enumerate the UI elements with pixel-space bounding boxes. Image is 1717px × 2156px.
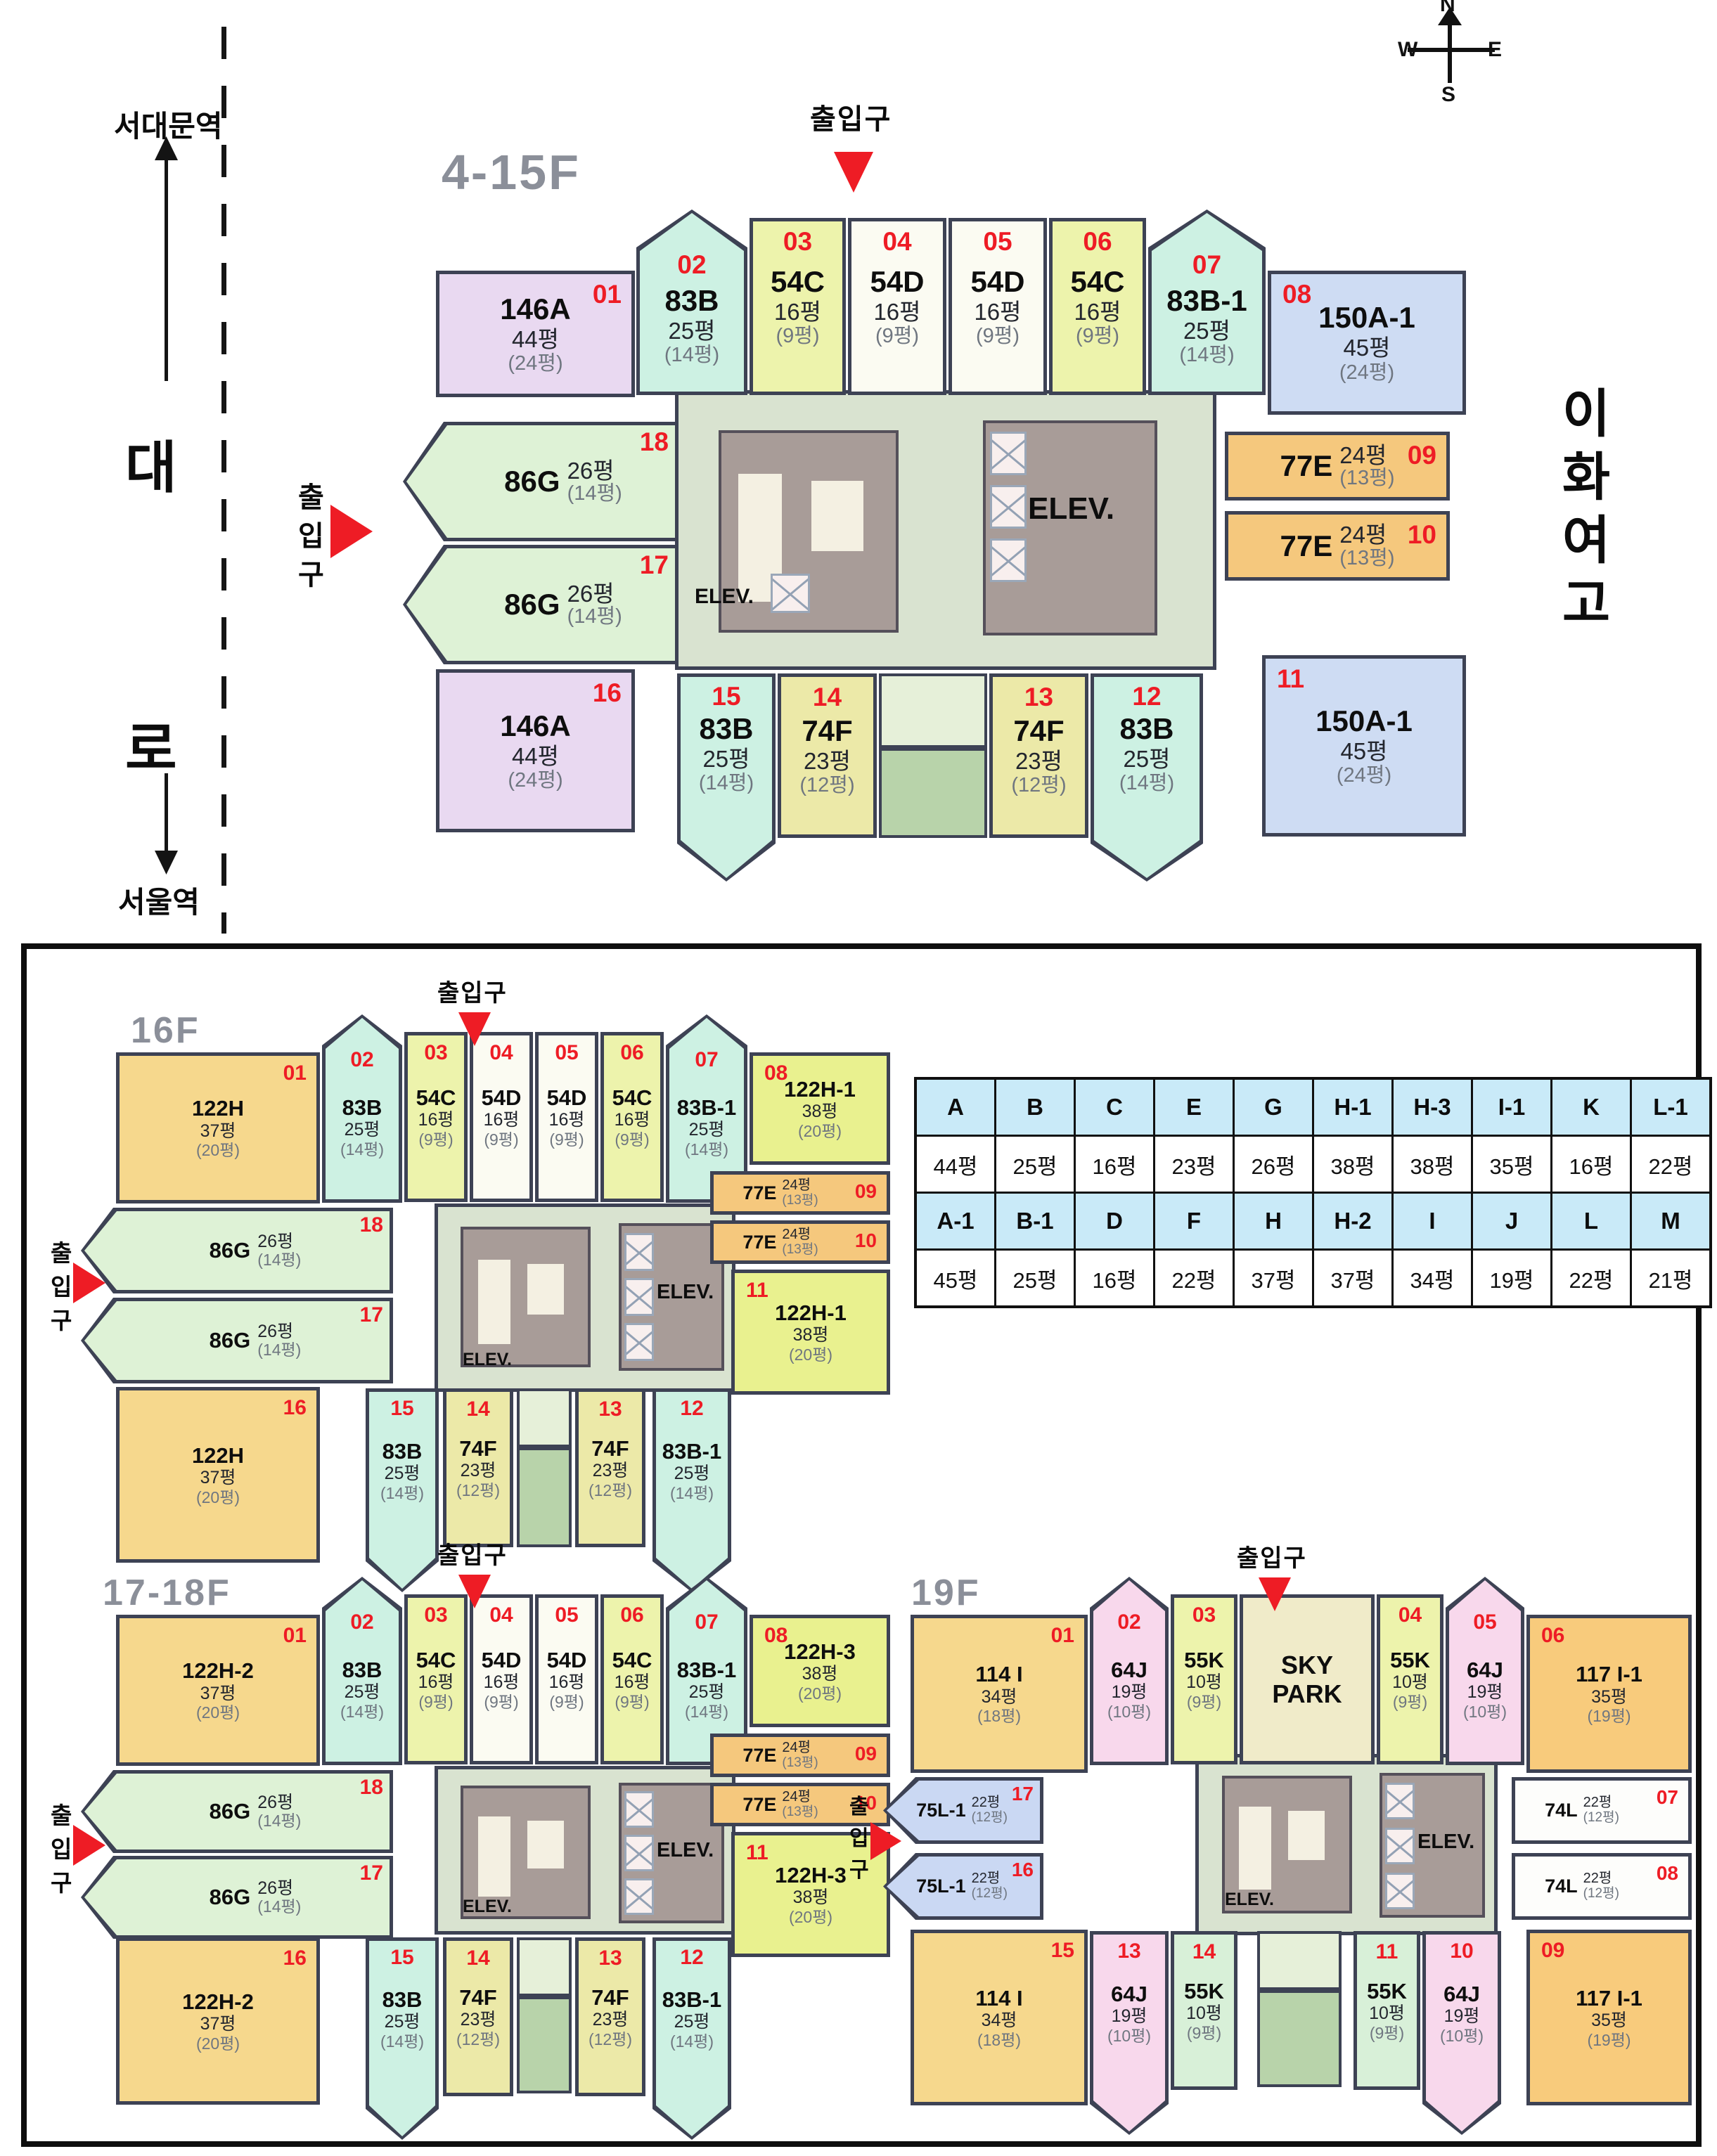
unit-area: 25평 — [345, 1682, 380, 1703]
unit-area: 16평 — [873, 299, 920, 325]
table-area-cell: 22평 — [1552, 1251, 1630, 1305]
lobby-area — [879, 748, 987, 838]
unit-number: 07 — [666, 1612, 747, 1633]
lobby-area — [879, 673, 987, 748]
unit-area-alt: (14평) — [567, 483, 622, 505]
school-label-char: 이 — [1562, 388, 1610, 440]
unit-area-alt: (14평) — [380, 2032, 424, 2051]
elevator-label: ELEV. — [657, 1282, 714, 1303]
table-type-cell: A-1 — [917, 1194, 994, 1248]
unit-number: 11 — [1277, 666, 1304, 692]
unit-area-alt: (14평) — [380, 1484, 424, 1502]
unit-area: 37평 — [200, 2014, 236, 2034]
unit-number: 17 — [360, 1305, 383, 1326]
elevator-shaft-icon — [1385, 1828, 1415, 1864]
entrance-label-char: 구 — [51, 1871, 72, 1894]
unit-areas: 26평(14평) — [257, 1879, 301, 1916]
table-area-cell: 44평 — [917, 1137, 994, 1192]
unit-4-15F-07: 83B-125평(14평)07 — [1148, 209, 1266, 395]
unit-19F-03: 55K10평(9평)03 — [1171, 1594, 1237, 1764]
unit-16F-15: 83B25평(14평)15 — [366, 1388, 439, 1592]
unit-type: 122H-1 — [784, 1077, 856, 1102]
unit-type: 83B — [382, 1987, 423, 2012]
unit-16F-13: 74F23평(12평)13 — [575, 1388, 645, 1547]
unit-area-alt: (9평) — [418, 1130, 453, 1149]
compass-w-label: W — [1398, 38, 1417, 62]
station-bottom-label: 서울역 — [118, 879, 200, 922]
unit-type: 64J — [1111, 1658, 1147, 1682]
unit-area-alt: (14평) — [664, 344, 719, 367]
unit-type: 77E — [742, 1794, 776, 1816]
unit-area: 24평 — [1339, 522, 1387, 548]
unit-area-alt: (9평) — [615, 1693, 649, 1711]
elevator-shaft-icon — [624, 1791, 654, 1828]
unit-type: 83B-1 — [662, 1439, 721, 1464]
unit-17-18F-16: 122H-237평(20평)16 — [116, 1937, 320, 2105]
unit-area: 23평 — [593, 1461, 629, 1481]
entrance-label-char: 출 — [51, 1241, 72, 1265]
unit-area-alt: (13평) — [782, 1805, 818, 1820]
unit-17-18F-15: 83B25평(14평)15 — [366, 1937, 439, 2140]
unit-number: 17 — [1012, 1784, 1034, 1804]
elevator-shaft-icon — [1385, 1873, 1415, 1909]
unit-number: 14 — [1174, 1942, 1234, 1963]
unit-areas: 26평(14평) — [567, 581, 622, 628]
unit-type: 54C — [612, 1085, 652, 1110]
unit-number: 04 — [1380, 1605, 1440, 1626]
unit-type: 54C — [1070, 265, 1124, 299]
unit-number: 16 — [283, 1397, 307, 1419]
elevator-label: ELEV. — [1225, 1891, 1274, 1909]
unit-area: 25평 — [668, 318, 715, 344]
unit-area: 16평 — [549, 1110, 585, 1130]
unit-area-alt: (10평) — [1107, 1703, 1151, 1721]
table-type-cell: I — [1394, 1194, 1471, 1248]
unit-areas: 24평(13평) — [782, 1741, 818, 1770]
unit-area-alt: (13평) — [1339, 548, 1394, 569]
unit-area: 44평 — [512, 326, 559, 353]
unit-number: 04 — [851, 228, 943, 254]
unit-type: 74F — [591, 1436, 629, 1461]
unit-19F-15: 114 I34평(18평)15 — [911, 1930, 1088, 2105]
unit-type: 74L — [1545, 1800, 1578, 1821]
lobby-area — [1257, 1931, 1342, 1990]
unit-number: 03 — [408, 1605, 464, 1626]
table-type-cell: K — [1552, 1080, 1630, 1135]
entrance-label: 출입구 — [849, 1797, 869, 1881]
unit-number: 07 — [1657, 1788, 1678, 1807]
floor-label-4-15F: 4-15F — [442, 148, 581, 197]
unit-type: 54C — [416, 1085, 456, 1110]
unit-area-alt: (14평) — [257, 1812, 301, 1830]
unit-content: 86G26평(14평) — [403, 422, 679, 541]
unit-type: 122H-2 — [182, 1658, 254, 1683]
unit-number: 10 — [1408, 522, 1436, 548]
unit-number: 02 — [322, 1612, 402, 1633]
unit-area: 19평 — [1444, 2006, 1480, 2027]
unit-16F-09: 77E24평(13평)09 — [710, 1171, 890, 1215]
unit-number: 13 — [579, 1399, 642, 1420]
unit-type: 122H — [192, 1096, 244, 1121]
unit-area-alt: (13평) — [782, 1756, 818, 1771]
elevator-label: ELEV. — [463, 1898, 512, 1916]
road-dashed-line — [221, 27, 226, 934]
unit-type: 77E — [742, 1232, 776, 1253]
unit-number: 08 — [1657, 1864, 1678, 1883]
unit-area-alt: (9평) — [976, 325, 1020, 348]
table-area-cell: 35평 — [1473, 1137, 1550, 1192]
elevator-shaft-icon — [624, 1878, 654, 1915]
unit-type: 86G — [210, 1799, 251, 1824]
unit-type: 122H-2 — [182, 1989, 254, 2014]
unit-content: 86G26평(14평) — [81, 1856, 393, 1939]
table-type-cell: A — [917, 1080, 994, 1135]
unit-area-alt: (9평) — [1187, 1693, 1221, 1711]
unit-16F-17: 86G26평(14평)17 — [81, 1298, 393, 1383]
unit-area: 25평 — [689, 1120, 725, 1140]
unit-type: 54C — [612, 1648, 652, 1672]
unit-areas: 24평(13평) — [782, 1227, 818, 1257]
unit-16F-08: 122H-138평(20평)08 — [750, 1052, 890, 1165]
unit-areas: 24평(13평) — [1339, 522, 1394, 569]
unit-19F-05: 64J19평(10평)05 — [1446, 1577, 1524, 1765]
unit-number: 14 — [446, 1399, 510, 1420]
unit-number: 14 — [781, 684, 873, 710]
unit-number: 11 — [1357, 1942, 1417, 1963]
unit-type: 54D — [870, 265, 924, 299]
unit-type: 74F — [459, 1436, 496, 1461]
unit-17-18F-03: 54C16평(9평)03 — [404, 1594, 468, 1764]
unit-area-alt: (12평) — [589, 2030, 632, 2048]
unit-area-alt: (12평) — [456, 2030, 500, 2048]
floor-plan-canvas: 서대문역 대 로 서울역 이화여고 N W E S 4-15FELEV.ELEV… — [0, 0, 1717, 2156]
unit-areas: 22평(12평) — [972, 1795, 1008, 1825]
unit-area: 16평 — [615, 1110, 650, 1130]
entrance-label: 출입구 — [51, 1241, 72, 1332]
unit-number: 09 — [855, 1182, 877, 1201]
unit-19F-01: 114 I34평(18평)01 — [911, 1615, 1088, 1773]
unit-type: 54C — [771, 265, 825, 299]
unit-number: 16 — [593, 680, 622, 706]
unit-number: 06 — [604, 1043, 660, 1064]
unit-17-18F-14: 74F23평(12평)14 — [443, 1937, 513, 2096]
unit-number: 17 — [360, 1863, 383, 1884]
unit-number: 05 — [539, 1605, 595, 1626]
unit-number: 17 — [640, 552, 669, 578]
unit-type: 83B — [382, 1439, 423, 1464]
unit-number: 08 — [1282, 281, 1311, 307]
unit-areas: 24평(13평) — [1339, 443, 1394, 490]
unit-area-alt: (19평) — [1587, 1707, 1631, 1725]
unit-area-alt: (14평) — [1119, 772, 1174, 795]
unit-area: 25평 — [385, 2012, 420, 2032]
unit-area: 22평 — [972, 1871, 1001, 1887]
unit-area: 45평 — [1340, 738, 1387, 765]
unit-area: 22평 — [972, 1795, 1001, 1811]
table-area-cell: 22평 — [1632, 1137, 1709, 1192]
unit-4-15F-09: 77E24평(13평)09 — [1225, 432, 1450, 501]
unit-type: 77E — [742, 1745, 776, 1767]
table-area-cell: 22평 — [1155, 1251, 1233, 1305]
unit-area-alt: (24평) — [508, 769, 562, 792]
unit-type: SKY PARK — [1261, 1651, 1353, 1708]
unit-areas: 24평(13평) — [782, 1790, 818, 1819]
unit-area-alt: (24평) — [1339, 361, 1394, 385]
table-type-cell: D — [1076, 1194, 1153, 1248]
unit-area: 16평 — [418, 1110, 454, 1130]
elevator-shaft-icon — [771, 574, 810, 613]
unit-area: 34평 — [982, 1687, 1017, 1708]
school-label: 이화여고 — [1562, 388, 1610, 630]
table-area-cell: 45평 — [917, 1251, 994, 1305]
unit-area-alt: (12평) — [589, 1481, 632, 1499]
table-area-cell: 16평 — [1552, 1137, 1630, 1192]
compass-icon: N W E S — [1398, 1, 1503, 107]
unit-19F-SKY PARK: SKY PARK — [1240, 1594, 1375, 1764]
unit-number: 04 — [473, 1605, 529, 1626]
unit-area: 16평 — [774, 299, 821, 325]
unit-number: 16 — [1012, 1860, 1034, 1880]
unit-area: 25평 — [1183, 318, 1230, 344]
unit-type: 86G — [504, 588, 560, 621]
unit-number: 05 — [1446, 1612, 1524, 1633]
unit-area: 23평 — [461, 2010, 496, 2030]
unit-17-18F-04: 54D16평(9평)04 — [470, 1594, 533, 1764]
unit-area-alt: (18평) — [977, 1707, 1021, 1725]
unit-number: 10 — [855, 1231, 877, 1251]
unit-area: 26평 — [257, 1322, 293, 1341]
unit-17-18F-05: 54D16평(9평)05 — [535, 1594, 598, 1764]
unit-number: 06 — [1541, 1625, 1564, 1646]
unit-16F-03: 54C16평(9평)03 — [404, 1032, 468, 1202]
unit-area-alt: (12평) — [1011, 774, 1066, 797]
unit-4-15F-08: 150A-145평(24평)08 — [1268, 271, 1466, 415]
unit-area: 38평 — [802, 1102, 838, 1122]
entrance-label: 출입구 — [1237, 1547, 1307, 1570]
road-label-char-2: 로 — [125, 721, 177, 777]
unit-area: 44평 — [512, 743, 559, 770]
unit-number: 13 — [993, 684, 1085, 710]
unit-area: 16평 — [1074, 299, 1121, 325]
table-area-cell: 19평 — [1473, 1251, 1550, 1305]
unit-area-alt: (9평) — [1393, 1693, 1427, 1711]
unit-type-table: ABCEGH-1H-3I-1KL-144평25평16평23평26평38평38평3… — [914, 1077, 1712, 1308]
core-slab — [527, 1264, 564, 1315]
unit-area: 16평 — [974, 299, 1021, 325]
unit-number: 03 — [1174, 1605, 1234, 1626]
unit-16F-04: 54D16평(9평)04 — [470, 1032, 533, 1202]
unit-area-alt: (20평) — [789, 1908, 832, 1926]
unit-number: 18 — [640, 429, 669, 455]
unit-4-15F-16: 146A44평(24평)16 — [436, 669, 635, 832]
unit-area-alt: (12평) — [972, 1811, 1008, 1826]
unit-16F-06: 54C16평(9평)06 — [600, 1032, 664, 1202]
unit-19F-11: 55K10평(9평)11 — [1353, 1931, 1420, 2090]
core-slab — [1288, 1811, 1325, 1860]
unit-area-alt: (20평) — [196, 1488, 240, 1506]
unit-areas: 22평(12평) — [1583, 1795, 1619, 1825]
unit-16F-18: 86G26평(14평)18 — [81, 1208, 393, 1293]
entrance-label-char: 출 — [849, 1797, 869, 1818]
unit-type: 122H-3 — [775, 1863, 847, 1887]
unit-type: 77E — [1280, 449, 1333, 483]
unit-type: 83B — [342, 1658, 382, 1682]
unit-number: 15 — [366, 1398, 439, 1419]
unit-4-15F-05: 54D16평(9평)05 — [948, 218, 1047, 395]
unit-type: 75L-1 — [916, 1876, 966, 1897]
unit-area-alt: (9평) — [875, 325, 919, 348]
unit-type: 86G — [504, 465, 560, 498]
table-type-cell: G — [1235, 1080, 1312, 1135]
unit-type: 55K — [1184, 1648, 1224, 1672]
unit-number: 15 — [1051, 1940, 1074, 1961]
unit-area-alt: (9평) — [1187, 2024, 1221, 2042]
core-slab — [1239, 1807, 1271, 1890]
unit-16F-05: 54D16평(9평)05 — [535, 1032, 598, 1202]
unit-type: 54D — [547, 1085, 587, 1110]
unit-type: 83B — [342, 1095, 382, 1120]
unit-16F-01: 122H37평(20평)01 — [116, 1052, 320, 1203]
unit-type: 74F — [802, 714, 852, 748]
unit-area-alt: (12평) — [1583, 1811, 1619, 1826]
unit-type: 83B-1 — [1166, 284, 1247, 318]
unit-type: 54C — [416, 1648, 456, 1672]
arrow-down-icon — [155, 851, 178, 874]
unit-area: 10평 — [1186, 1672, 1222, 1693]
unit-number: 04 — [473, 1043, 529, 1064]
unit-type: 114 I — [975, 1986, 1022, 2010]
unit-area-alt: (9평) — [615, 1130, 649, 1149]
unit-content: 83B25평(14평) — [636, 209, 747, 395]
lobby-area — [517, 1447, 572, 1547]
entrance-label: 출입구 — [298, 484, 324, 589]
table-type-cell: H-2 — [1314, 1194, 1391, 1248]
table-type-cell: L — [1552, 1194, 1630, 1248]
unit-area: 24평 — [782, 1741, 811, 1756]
unit-area-alt: (9평) — [1370, 2024, 1404, 2042]
table-area-cell: 37평 — [1314, 1251, 1391, 1305]
entrance-arrow-icon — [834, 152, 873, 193]
unit-area-alt: (14평) — [257, 1341, 301, 1359]
unit-number: 10 — [1422, 1941, 1501, 1962]
unit-number: 09 — [1541, 1940, 1564, 1961]
unit-area: 23평 — [461, 1461, 496, 1481]
unit-19F-16: 75L-122평(12평)16 — [883, 1853, 1043, 1920]
unit-4-15F-12: 83B25평(14평)12 — [1091, 673, 1203, 882]
table-area-cell: 37평 — [1235, 1251, 1312, 1305]
unit-area-alt: (14평) — [670, 1484, 714, 1502]
unit-area-alt: (14평) — [685, 1140, 728, 1158]
core-slab — [527, 1821, 564, 1868]
entrance-label-char: 출 — [298, 484, 324, 512]
unit-number: 15 — [366, 1947, 439, 1968]
unit-area: 22평 — [1583, 1795, 1612, 1811]
unit-area-alt: (12평) — [799, 774, 854, 797]
unit-area-alt: (18평) — [977, 2031, 1021, 2049]
unit-area: 38평 — [793, 1325, 829, 1345]
arrow-up-shaft — [165, 156, 168, 381]
road-label-char-1: 대 — [125, 440, 177, 496]
unit-19F-10: 64J19평(10평)10 — [1422, 1931, 1501, 2135]
table-area-cell: 21평 — [1632, 1251, 1709, 1305]
elevator-shaft-icon — [624, 1233, 654, 1271]
unit-area-alt: (14평) — [699, 772, 754, 795]
unit-type: 74L — [1545, 1876, 1578, 1897]
unit-number: 08 — [764, 1625, 787, 1646]
unit-number: 02 — [636, 252, 747, 278]
unit-4-15F-04: 54D16평(9평)04 — [848, 218, 946, 395]
unit-type: 86G — [210, 1328, 251, 1353]
unit-area: 37평 — [200, 1121, 236, 1142]
unit-area: 25평 — [1123, 746, 1170, 773]
table-area-cell: 34평 — [1394, 1251, 1471, 1305]
lobby-area — [517, 1996, 572, 2093]
unit-number: 18 — [360, 1215, 383, 1236]
unit-type: 75L-1 — [916, 1800, 966, 1821]
unit-area-alt: (24평) — [1337, 764, 1391, 787]
unit-area: 19평 — [1467, 1682, 1503, 1703]
unit-area-alt: (10평) — [1107, 2027, 1151, 2045]
unit-number: 11 — [746, 1280, 769, 1301]
unit-type: 54D — [970, 265, 1024, 299]
unit-area: 23평 — [1015, 748, 1062, 775]
unit-content: 83B-125평(14평) — [1148, 209, 1266, 395]
unit-17-18F-18: 86G26평(14평)18 — [81, 1770, 393, 1853]
unit-type: 55K — [1390, 1648, 1430, 1672]
elevator-label: ELEV. — [1028, 493, 1114, 524]
unit-type: 150A-1 — [1318, 301, 1415, 335]
unit-area-alt: (19평) — [1587, 2031, 1631, 2049]
unit-4-15F-14: 74F23평(12평)14 — [778, 673, 877, 838]
unit-type: 83B-1 — [677, 1658, 736, 1682]
unit-area: 10평 — [1186, 2003, 1222, 2024]
unit-area: 26평 — [567, 458, 615, 484]
unit-19F-07: 74L22평(12평)07 — [1512, 1777, 1692, 1844]
table-type-cell: I-1 — [1473, 1080, 1550, 1135]
entrance-arrow-icon — [330, 505, 373, 558]
compass-e-label: E — [1488, 38, 1502, 62]
entrance-label-char: 구 — [51, 1309, 72, 1332]
unit-number: 01 — [1051, 1625, 1074, 1646]
unit-number: 07 — [666, 1050, 747, 1071]
table-area-cell: 25평 — [996, 1251, 1074, 1305]
unit-19F-14: 55K10평(9평)14 — [1171, 1931, 1237, 2090]
unit-type: 54D — [482, 1085, 522, 1110]
unit-number: 01 — [593, 281, 622, 307]
unit-type: 83B — [664, 284, 719, 318]
table-type-cell: C — [1076, 1080, 1153, 1135]
unit-number: 07 — [1148, 252, 1266, 278]
unit-19F-13: 64J19평(10평)13 — [1090, 1931, 1169, 2135]
table-area-cell: 38평 — [1394, 1137, 1471, 1192]
unit-area: 25평 — [674, 1464, 710, 1484]
unit-area-alt: (14평) — [340, 1140, 384, 1158]
unit-type: 114 I — [975, 1662, 1022, 1686]
unit-number: 15 — [677, 683, 776, 709]
unit-area-alt: (14평) — [685, 1703, 728, 1721]
unit-17-18F-08: 122H-338평(20평)08 — [750, 1615, 890, 1727]
unit-type: 117 I-1 — [1576, 1662, 1642, 1686]
table-type-cell: F — [1155, 1194, 1233, 1248]
unit-number: 16 — [283, 1948, 307, 1969]
entrance-label-char: 구 — [298, 561, 324, 589]
unit-area: 26평 — [257, 1232, 293, 1251]
unit-4-15F-01: 146A44평(24평)01 — [436, 271, 635, 397]
unit-areas: 26평(14평) — [257, 1232, 301, 1269]
unit-content: 64J19평(10평) — [1446, 1577, 1524, 1765]
elevator-label: ELEV. — [695, 586, 754, 607]
unit-number: 14 — [446, 1948, 510, 1969]
